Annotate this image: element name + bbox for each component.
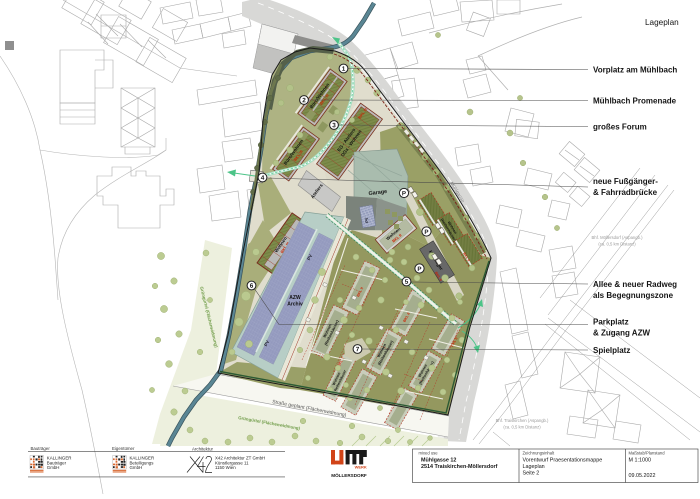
svg-text:Lageplan: Lageplan	[645, 18, 679, 27]
svg-text:P: P	[424, 229, 428, 236]
svg-text:MÖLLERSDORF: MÖLLERSDORF	[331, 472, 367, 478]
svg-text:Bauträger: Bauträger	[31, 446, 51, 451]
svg-text:Eigentümer: Eigentümer	[112, 446, 135, 451]
svg-text:4: 4	[261, 175, 265, 182]
svg-text:5: 5	[405, 279, 409, 286]
svg-text:GmbH: GmbH	[47, 465, 60, 470]
svg-text:& Fahrradbrücke: & Fahrradbrücke	[593, 188, 658, 197]
svg-text:(ca. 0,5 km Distanz): (ca. 0,5 km Distanz)	[598, 242, 636, 247]
svg-text:Zeichnungsinhalt: Zeichnungsinhalt	[523, 451, 555, 456]
svg-text:Vorplatz am Mühlbach: Vorplatz am Mühlbach	[593, 66, 677, 75]
svg-text:7: 7	[356, 346, 360, 353]
svg-text:6: 6	[250, 283, 254, 290]
svg-text:Seite 2: Seite 2	[523, 471, 540, 477]
svg-text:Vorentwurf Praesentationsmappe: Vorentwurf Praesentationsmappe	[523, 458, 603, 464]
svg-text:Maßstab/Planstand: Maßstab/Planstand	[629, 451, 666, 456]
svg-text:1150 Wien: 1150 Wien	[215, 465, 236, 470]
svg-text:Parkplatz: Parkplatz	[593, 318, 629, 327]
svg-text:Mühlgasse 12: Mühlgasse 12	[421, 458, 456, 464]
svg-text:großes Forum: großes Forum	[593, 123, 647, 132]
svg-text:(ca. 0,5 km Distanz): (ca. 0,5 km Distanz)	[503, 425, 541, 430]
svg-text:& Zugang AZW: & Zugang AZW	[593, 329, 650, 338]
svg-text:Allee & neuer Radweg: Allee & neuer Radweg	[593, 280, 677, 289]
svg-text:WERK: WERK	[355, 465, 367, 470]
svg-text:09.05.2022: 09.05.2022	[629, 473, 656, 479]
svg-text:AZW: AZW	[289, 295, 301, 301]
svg-text:P: P	[417, 266, 421, 273]
svg-text:PV: PV	[364, 217, 370, 223]
svg-text:1: 1	[342, 66, 346, 73]
svg-text:2514 Traiskirchen-Möllersdorf: 2514 Traiskirchen-Möllersdorf	[421, 464, 498, 470]
svg-text:2: 2	[302, 97, 306, 104]
svg-text:Spielplatz: Spielplatz	[593, 346, 630, 355]
svg-text:Archiv: Archiv	[287, 302, 303, 308]
svg-text:Lageplan: Lageplan	[523, 464, 545, 470]
svg-text:GmbH: GmbH	[130, 465, 143, 470]
svg-text:Bhf. Traiskirchen (Aspangb.): Bhf. Traiskirchen (Aspangb.)	[496, 418, 549, 423]
svg-text:Architektur: Architektur	[192, 447, 214, 452]
svg-text:mixed use: mixed use	[419, 451, 439, 456]
svg-text:M 1:1000: M 1:1000	[629, 458, 651, 464]
svg-text:neue Fußgänger-: neue Fußgänger-	[593, 177, 658, 186]
svg-text:Bhf. Möllersdorf (Aspangb.): Bhf. Möllersdorf (Aspangb.)	[592, 235, 644, 240]
svg-text:3: 3	[332, 122, 336, 129]
svg-text:P: P	[402, 190, 406, 197]
svg-text:als Begegnungszone: als Begegnungszone	[593, 291, 674, 300]
svg-text:Mühlbach Promenade: Mühlbach Promenade	[593, 97, 677, 106]
